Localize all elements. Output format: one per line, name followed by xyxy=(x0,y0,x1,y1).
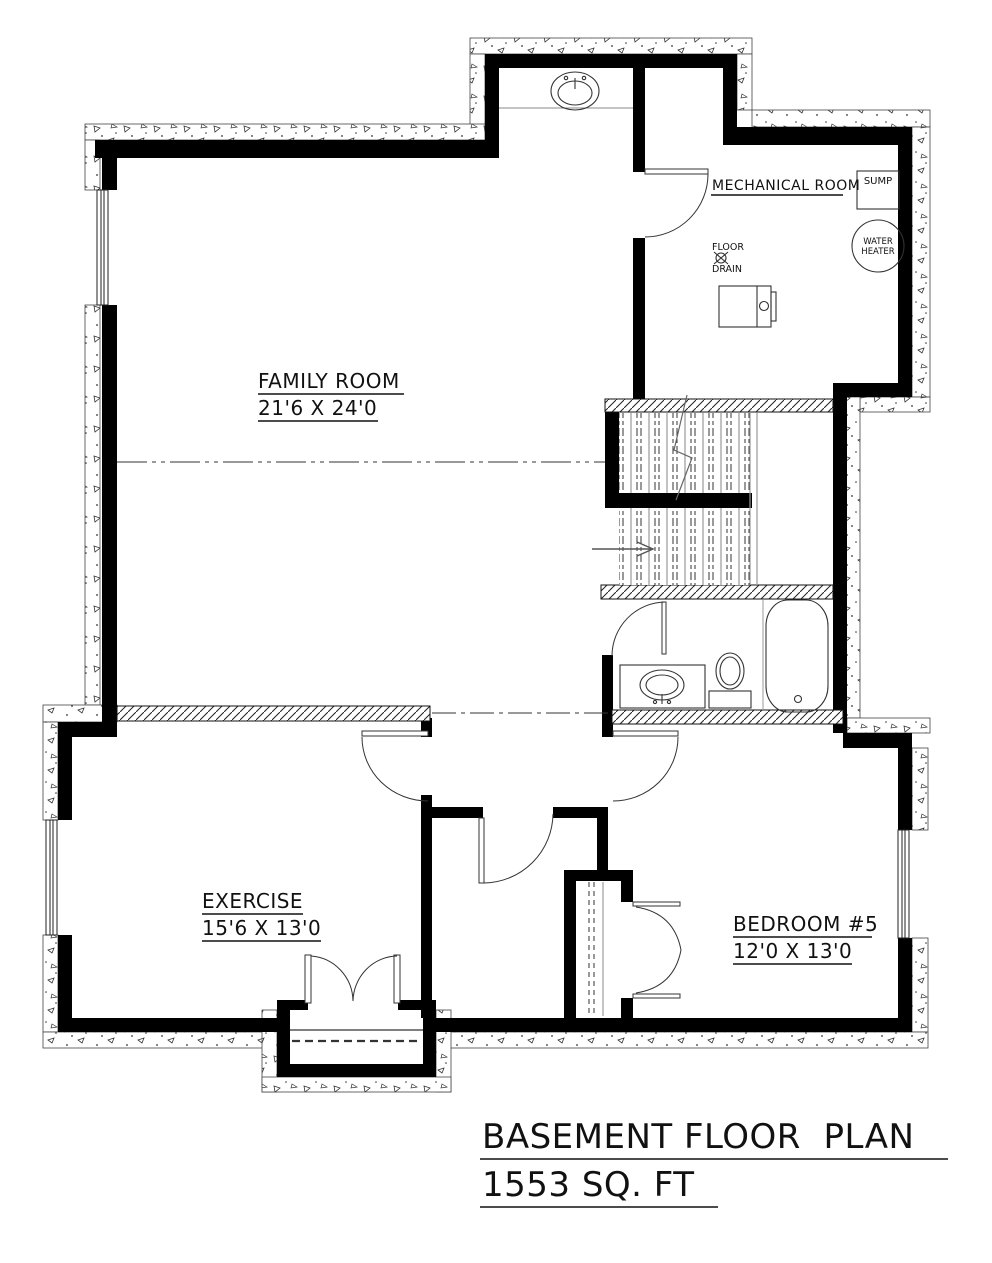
vanity-sink xyxy=(620,665,705,708)
family-room-window xyxy=(97,190,108,305)
stair-upper-run xyxy=(619,413,750,493)
exercise-window xyxy=(46,820,57,935)
closet-double-doors xyxy=(633,902,681,998)
bedroom5-dims: 12'0 X 13'0 xyxy=(733,939,852,963)
exercise-dims: 15'6 X 13'0 xyxy=(202,916,321,940)
sump-label: SUMP xyxy=(864,176,892,187)
stair-bottom-wall xyxy=(601,585,833,599)
floor-drain-label-2: DRAIN xyxy=(712,264,742,275)
toilet xyxy=(709,653,751,708)
bedroom5-label: BEDROOM #5 xyxy=(733,912,878,936)
exercise-french-doors xyxy=(305,955,400,1003)
floor-drain-label-1: FLOOR xyxy=(712,242,744,253)
reference-lines xyxy=(117,462,612,713)
closet-interior xyxy=(589,882,603,1016)
windows xyxy=(46,190,909,938)
title-line-2: 1553 SQ. FT xyxy=(482,1165,695,1205)
floor-plan-drawing: FAMILY ROOM 21'6 X 24'0 MECHANICAL ROOM … xyxy=(0,0,992,1258)
storage-door xyxy=(479,814,553,883)
water-heater-label-2: HEATER xyxy=(861,247,894,257)
bathtub xyxy=(766,600,828,712)
exercise-door xyxy=(362,731,428,801)
plan-title: BASEMENT FLOOR PLAN 1553 SQ. FT xyxy=(480,1117,948,1207)
title-line-1: BASEMENT FLOOR PLAN xyxy=(482,1117,914,1157)
laundry-sink xyxy=(551,72,599,110)
furnace xyxy=(719,286,776,327)
exercise-family-wall xyxy=(117,706,430,721)
floor-drain-symbol xyxy=(714,252,728,264)
mechanical-room-door xyxy=(645,169,708,237)
family-room-label: FAMILY ROOM xyxy=(258,369,400,393)
basement-floor-plan: FAMILY ROOM 21'6 X 24'0 MECHANICAL ROOM … xyxy=(0,0,992,1258)
window-well xyxy=(290,1030,423,1041)
mechanical-room-label: MECHANICAL ROOM xyxy=(712,178,860,194)
bedroom-window xyxy=(898,830,909,938)
room-labels: FAMILY ROOM 21'6 X 24'0 MECHANICAL ROOM … xyxy=(202,178,878,964)
stair-top-wall xyxy=(605,399,833,412)
stair-lower-run xyxy=(619,508,750,585)
bedroom-door xyxy=(613,731,678,801)
bathroom xyxy=(620,600,828,712)
water-heater-label-1: WATER xyxy=(863,237,893,247)
bathroom-door xyxy=(612,602,666,656)
exercise-label: EXERCISE xyxy=(202,889,303,913)
family-room-dims: 21'6 X 24'0 xyxy=(258,396,377,420)
laundry-sink-nook xyxy=(499,72,633,110)
